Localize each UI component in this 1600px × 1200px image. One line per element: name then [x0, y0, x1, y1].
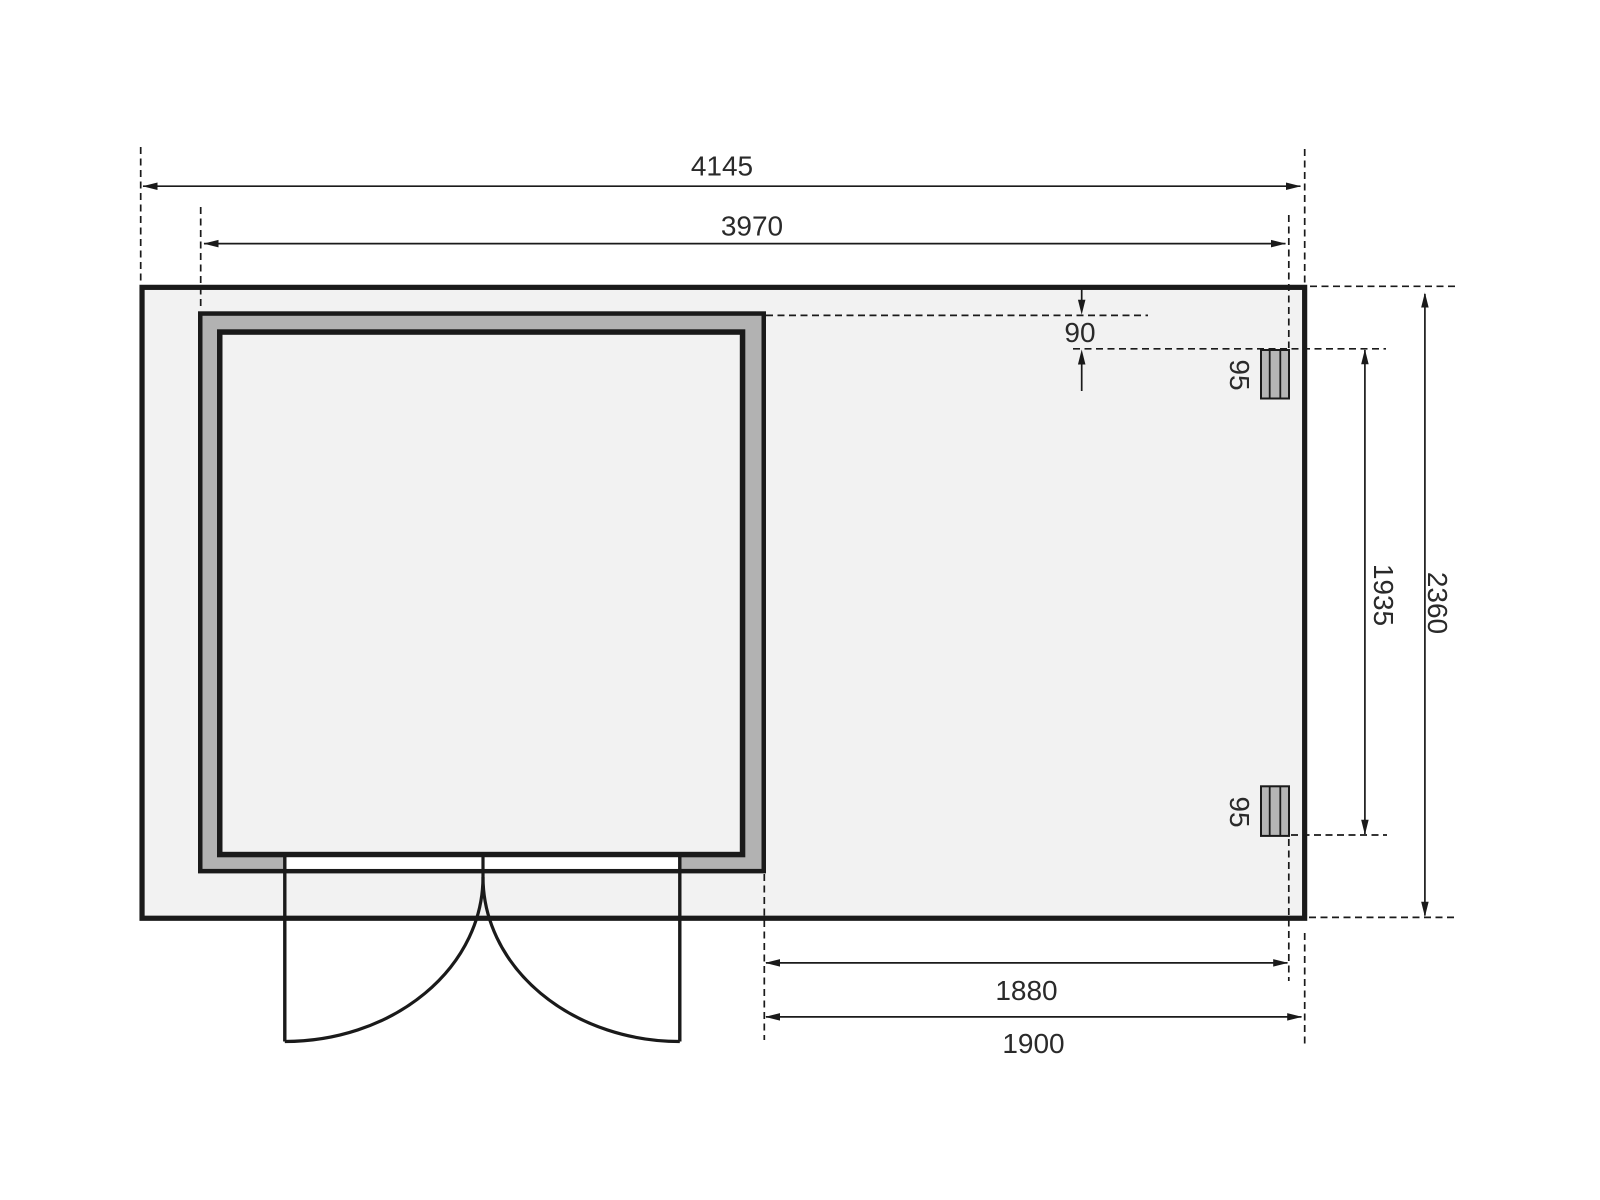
svg-text:4145: 4145 [691, 151, 753, 182]
svg-text:95: 95 [1224, 796, 1255, 827]
svg-text:2360: 2360 [1422, 572, 1453, 634]
svg-text:95: 95 [1224, 359, 1255, 390]
svg-text:1880: 1880 [995, 975, 1057, 1006]
svg-text:90: 90 [1064, 317, 1095, 348]
svg-text:1900: 1900 [1002, 1028, 1064, 1059]
svg-text:3970: 3970 [721, 210, 783, 241]
svg-text:1935: 1935 [1368, 564, 1399, 626]
